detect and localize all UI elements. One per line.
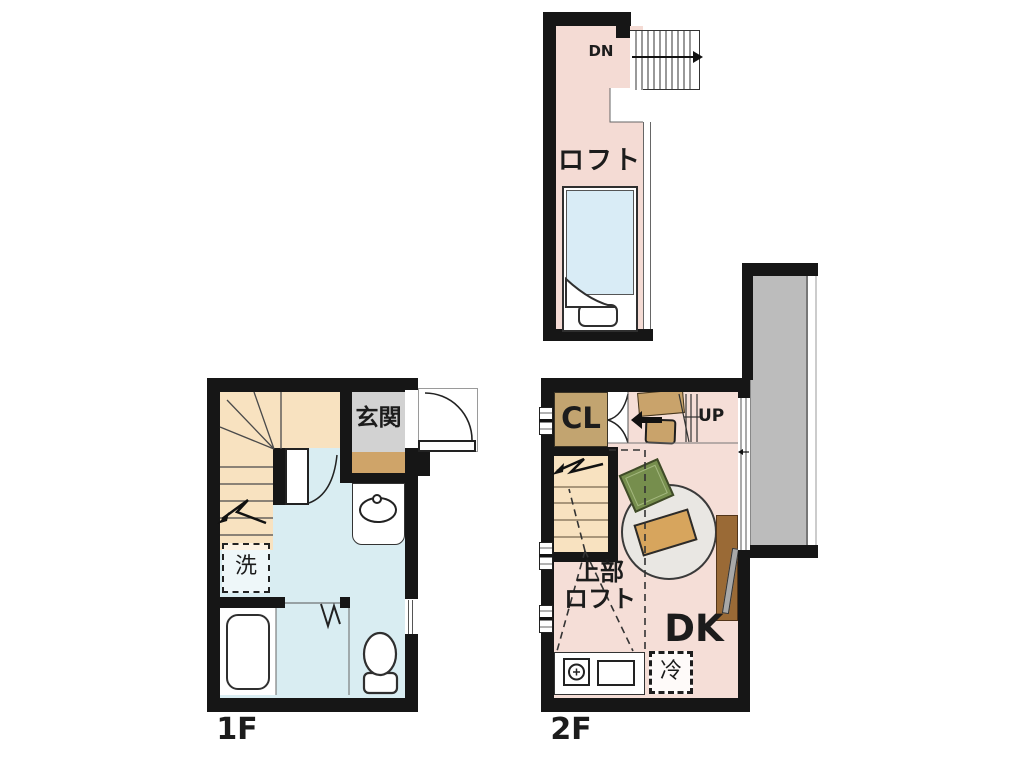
dk-label: DK [662, 610, 726, 649]
washbasin-unit [352, 483, 405, 545]
floor1-wall-bath-top-left [207, 597, 285, 608]
floor2-wall-bottom [541, 698, 750, 712]
loft-wall-left [543, 12, 556, 341]
washroom-door-leaf [285, 448, 309, 505]
floor1-title: 1F [207, 714, 267, 746]
balcony [750, 276, 807, 545]
upper-loft-label-line1: 上部 [556, 560, 644, 585]
plan-lineart [0, 0, 1024, 768]
dn-label: DN [586, 44, 616, 60]
loft-stair-landing [610, 88, 643, 122]
floor1-wall-stair-bar [273, 448, 285, 505]
balcony-sliding-window [738, 398, 750, 550]
closet-door-strip [608, 392, 628, 443]
floor2-wall-stairwell-right [608, 447, 618, 552]
balcony-wall-top [742, 263, 818, 276]
floor-plan: ロフト DN 玄関 洗 1F CL UP 上部 ロフト DK 冷 2F [0, 0, 1024, 768]
entrance-label: 玄関 [352, 406, 405, 430]
bed-pillow [578, 304, 618, 327]
floor2-wall-right-lower [738, 550, 750, 712]
refrigerator-label: 冷 [649, 660, 693, 683]
floor1-staircase-lower [220, 448, 273, 550]
entrance-step [352, 452, 405, 473]
floor1-wall-top [207, 378, 418, 392]
floor1-wall-entrance-left [340, 392, 352, 483]
bathtub [226, 614, 270, 690]
entrance-door-leaf [418, 440, 476, 452]
floor2-wall-top [541, 378, 750, 392]
floor2-window-3 [539, 605, 553, 633]
floor1-wall-under-step [340, 473, 405, 483]
upper-loft-label-line2: ロフト [556, 587, 644, 612]
loft-dn-staircase [630, 30, 700, 90]
chair [645, 418, 677, 444]
kitchen-sink [597, 660, 635, 686]
floor2-wall-right-upper [738, 378, 750, 398]
floor1-wall-bottom [207, 698, 418, 712]
desk [637, 389, 685, 417]
floor2-staircase [554, 456, 608, 552]
floor1-wall-bath-top-right [340, 597, 350, 608]
balcony-wall-bottom [742, 545, 818, 558]
floor-cushion-inner [625, 465, 668, 507]
floor1-staircase-upper [220, 392, 340, 448]
floor2-window-1 [539, 407, 553, 435]
floor1-wall-porch-stub [418, 452, 430, 476]
floor2-title: 2F [541, 714, 601, 746]
floor2-window-2 [539, 542, 553, 570]
loft-label: ロフト [556, 148, 644, 175]
floor1-window-cap-bottom [405, 634, 418, 638]
floor1-toilet-window [405, 599, 418, 634]
bed-mattress [566, 190, 634, 295]
closet-label: CL [554, 403, 608, 433]
washing-machine-label: 洗 [222, 555, 270, 578]
stove [563, 658, 590, 686]
entrance-door-opening [405, 390, 418, 448]
balcony-wall-left [742, 263, 753, 380]
loft-partition-wall [643, 122, 651, 329]
loft-wall-corner [616, 12, 630, 38]
up-label: UP [698, 408, 732, 426]
floor1-wall-left [207, 378, 220, 712]
